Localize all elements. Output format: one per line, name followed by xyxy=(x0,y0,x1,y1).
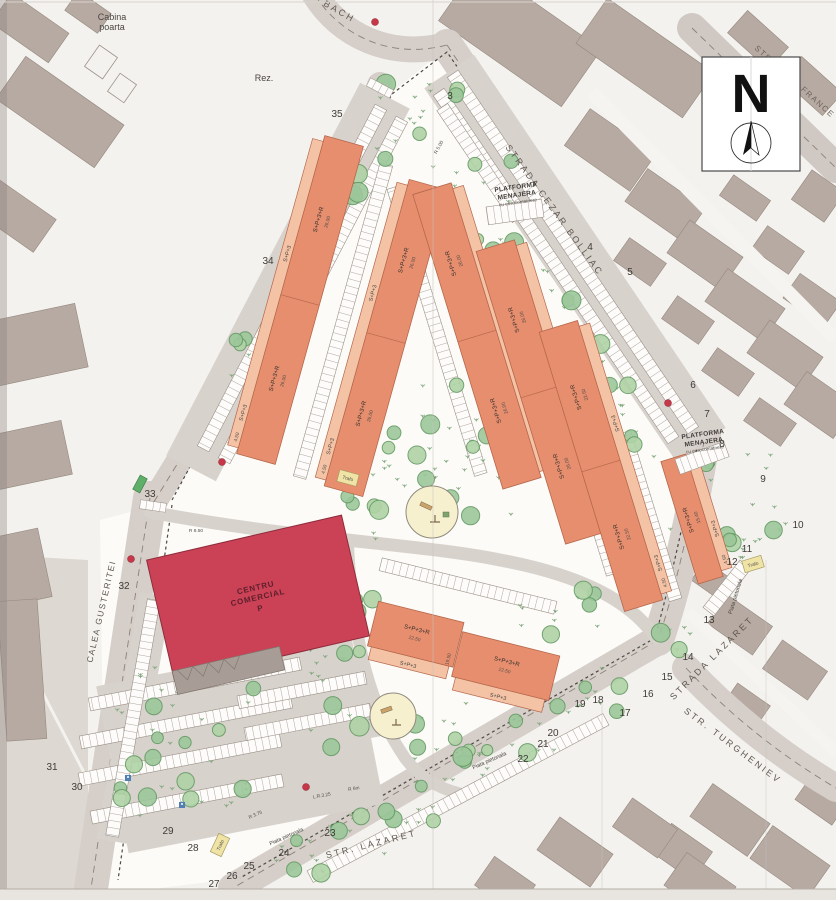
tree xyxy=(212,723,225,736)
plot-number: 9 xyxy=(760,474,766,485)
tree xyxy=(378,151,393,166)
plot-number: 19 xyxy=(574,699,586,710)
plot-number: 24 xyxy=(278,848,290,859)
tree xyxy=(234,780,251,797)
traffic-sign-dot xyxy=(665,400,672,407)
site-plan-drawing: S+P+3+R26.00S+P+3S+P+3+R26.00S+P+34.50S+… xyxy=(0,0,836,900)
gatehouse-label: poarta xyxy=(99,22,125,32)
plot-number: 3 xyxy=(447,91,453,102)
traffic-sign-dot xyxy=(303,784,310,791)
tree xyxy=(183,791,199,807)
reserve-label: Rez. xyxy=(255,73,274,83)
tree xyxy=(453,747,473,767)
plot-number: 34 xyxy=(262,256,274,267)
plot-number: 29 xyxy=(162,826,174,837)
tree xyxy=(542,626,559,643)
tree xyxy=(449,378,463,392)
north-indicator: N xyxy=(702,57,800,171)
tree xyxy=(246,681,261,696)
tree xyxy=(382,441,395,454)
plot-number: 10 xyxy=(792,520,804,531)
tree xyxy=(312,864,330,882)
tree xyxy=(651,623,670,642)
tree xyxy=(468,157,482,171)
tree xyxy=(579,681,592,694)
tree xyxy=(229,333,242,346)
plot-number: 21 xyxy=(537,739,549,750)
tree xyxy=(152,732,164,744)
plot-number: 16 xyxy=(642,689,654,700)
plot-number: 31 xyxy=(46,762,58,773)
tree xyxy=(509,714,523,728)
tree xyxy=(408,446,426,464)
tree xyxy=(562,291,581,310)
radius-callout: R 8.50 xyxy=(189,528,203,534)
tree xyxy=(611,678,628,695)
plot-number: 4 xyxy=(587,242,593,253)
plot-number: 30 xyxy=(71,782,83,793)
tree xyxy=(177,773,194,790)
plot-number: 27 xyxy=(208,879,220,890)
tree xyxy=(467,440,480,453)
tree xyxy=(145,749,161,765)
tree xyxy=(113,789,130,806)
tree xyxy=(421,415,440,434)
tree xyxy=(627,437,642,452)
traffic-sign-dot xyxy=(372,19,379,26)
playground-south xyxy=(370,693,416,739)
tree xyxy=(550,699,565,714)
tree xyxy=(324,697,342,715)
plot-number: 25 xyxy=(243,861,255,872)
tree xyxy=(353,646,365,658)
tree xyxy=(574,581,592,599)
plot-number: 5 xyxy=(627,267,633,278)
tree xyxy=(387,426,401,440)
plot-number: 35 xyxy=(331,109,343,120)
playground-central xyxy=(406,486,458,538)
plot-number: 14 xyxy=(682,652,694,663)
tree xyxy=(125,756,142,773)
plot-number: 11 xyxy=(742,544,753,555)
plot-number: 20 xyxy=(547,728,559,739)
plot-number: 8 xyxy=(719,439,725,450)
tree xyxy=(482,745,493,756)
tree xyxy=(370,500,389,519)
tree xyxy=(620,377,637,394)
plot-number: 13 xyxy=(703,615,715,626)
tree xyxy=(418,471,435,488)
plot-number: 22 xyxy=(517,754,529,765)
plot-number: 17 xyxy=(619,708,631,719)
tree xyxy=(350,717,370,737)
tree xyxy=(337,645,353,661)
traffic-sign-dot xyxy=(128,556,135,563)
plot-number: 26 xyxy=(226,871,238,882)
tree xyxy=(287,862,302,877)
plot-number: 33 xyxy=(144,489,156,500)
plot-number: 32 xyxy=(118,581,130,592)
site-plan-scan: S+P+3+R26.00S+P+3S+P+3+R26.00S+P+34.50S+… xyxy=(0,0,836,900)
north-letter: N xyxy=(732,64,771,124)
plot-number: 28 xyxy=(187,843,199,854)
plot-number: 12 xyxy=(726,557,738,568)
tree xyxy=(179,736,191,748)
tree xyxy=(582,598,596,612)
tree xyxy=(378,803,395,820)
tree xyxy=(138,788,156,806)
tree xyxy=(461,507,479,525)
traffic-sign-dot xyxy=(219,459,226,466)
tree xyxy=(323,739,340,756)
plot-number: 7 xyxy=(704,409,710,420)
gatehouse-label: Cabina xyxy=(98,12,127,22)
tree xyxy=(145,698,162,715)
tree xyxy=(415,780,427,792)
tree xyxy=(353,808,370,825)
tree xyxy=(410,739,426,755)
plot-number: 15 xyxy=(661,672,673,683)
tree xyxy=(448,732,462,746)
tree xyxy=(413,127,427,141)
plot-number: 6 xyxy=(690,380,696,391)
tree xyxy=(765,521,783,539)
plot-number: 23 xyxy=(324,828,336,839)
